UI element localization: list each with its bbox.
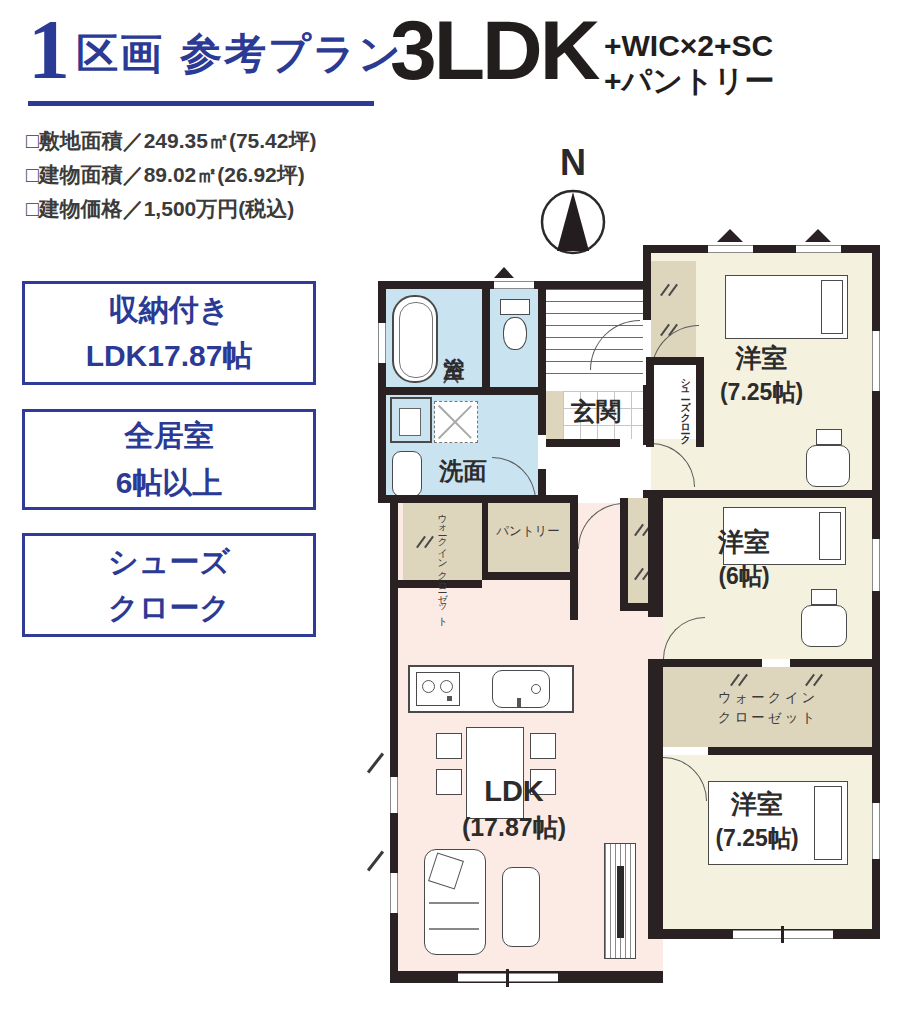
wall-segment	[648, 659, 663, 747]
window	[708, 245, 753, 253]
bathtub-icon	[392, 295, 438, 383]
sofa-icon	[424, 849, 486, 955]
layout-extras: +WIC×2+SC +パントリー	[604, 28, 774, 98]
wall-segment	[648, 498, 663, 617]
wall-segment	[620, 603, 662, 611]
plot-number: 1	[28, 10, 70, 90]
sofa-line	[429, 928, 479, 930]
window	[872, 539, 880, 591]
wall-segment	[538, 281, 546, 391]
window	[872, 803, 880, 859]
plot-unit-label: 区画	[70, 26, 164, 90]
walk-in-closet-east-floor	[663, 667, 872, 747]
bedroom-ne-size: (7.25帖)	[651, 377, 872, 408]
vanity-icon	[390, 397, 432, 443]
pillow	[821, 280, 843, 334]
wic-east-label-2: クローゼット	[678, 709, 858, 727]
wall-segment	[482, 572, 578, 580]
closet-hatch-icon	[660, 283, 682, 298]
wall-segment	[386, 495, 570, 503]
shutter-mark	[367, 851, 384, 872]
wall-segment	[643, 245, 880, 253]
layout-extra-1: +WIC×2+SC	[604, 28, 774, 63]
bedroom-e-label: 洋室	[663, 525, 825, 560]
feature-box-shoes: シューズ クローク	[22, 533, 316, 637]
closet-hatch-icon	[730, 673, 752, 688]
bedroom-ne-label: 洋室	[651, 341, 872, 376]
kitchen-sink-icon	[492, 670, 550, 708]
hatch-bar	[813, 674, 823, 687]
window	[494, 281, 534, 289]
wall-segment	[378, 387, 546, 395]
chair-icon	[801, 605, 847, 647]
burner-dot	[447, 696, 452, 701]
window-mullion	[506, 969, 509, 987]
entrance-label: 玄関	[546, 395, 646, 428]
layout-extra-2: +パントリー	[604, 63, 774, 98]
toilet-tank	[500, 299, 530, 315]
site-area: □敷地面積／249.35㎡(75.42坪)	[26, 124, 316, 158]
feature-box-ldk: 収納付き LDK17.87帖	[22, 281, 316, 385]
property-details: □敷地面積／249.35㎡(75.42坪) □建物面積／89.02㎡(26.92…	[26, 124, 316, 226]
chair-icon	[806, 445, 850, 487]
wall-segment	[663, 659, 762, 667]
building-area: □建物面積／89.02㎡(26.92坪)	[26, 158, 316, 192]
wall-segment	[643, 490, 880, 498]
sofa-line	[429, 902, 479, 904]
vent-triangle-icon	[494, 267, 514, 278]
bathtub-inner	[399, 302, 433, 378]
wall-segment	[643, 245, 651, 320]
window	[796, 245, 841, 253]
drain	[531, 684, 541, 694]
wall-segment	[482, 289, 490, 387]
closet-hatch-icon	[805, 673, 827, 688]
bedroom-e-size: (6帖)	[663, 561, 825, 592]
washing-machine-icon	[434, 401, 478, 443]
vent-triangle-icon	[805, 229, 831, 242]
compass-north-label: N	[538, 142, 608, 184]
faucet	[517, 698, 521, 707]
vanity-bowl	[399, 408, 421, 436]
dining-chair-icon	[530, 733, 556, 759]
window	[872, 331, 880, 391]
tv-board-icon	[604, 843, 636, 959]
vent-triangle-icon	[717, 229, 743, 242]
feature-2-line1: 全居室	[124, 413, 214, 460]
burner	[440, 680, 453, 693]
shutter-mark	[367, 753, 384, 774]
wall-segment	[790, 659, 880, 667]
chair-back	[816, 429, 842, 445]
kitchen-stove-icon	[416, 672, 460, 706]
window	[390, 777, 398, 813]
burner	[422, 680, 435, 693]
bedroom-se-size: (7.25帖)	[655, 823, 859, 854]
building-price: □建物価格／1,500万円(税込)	[26, 192, 316, 226]
window	[390, 873, 398, 913]
bed-icon	[725, 275, 848, 339]
feature-3-line1: シューズ	[108, 539, 230, 586]
ldk-size: (17.87帖)	[398, 811, 630, 844]
flyer-page: { "title": {"number": "1", "unit": "区画",…	[0, 0, 898, 1024]
layout-type: 3LDK	[390, 8, 597, 92]
wic-side-label: ウォークインクローゼット	[418, 507, 450, 577]
wall-segment	[708, 747, 880, 755]
wall-segment	[648, 747, 663, 755]
feature-1-line1: 収納付き	[109, 287, 230, 334]
hatch-bar	[668, 284, 678, 297]
window-mullion	[781, 926, 784, 943]
feature-1-line2: LDK17.87帖	[86, 333, 253, 380]
toilet-icon	[503, 317, 527, 350]
feature-2-line2: 6帖以上	[116, 460, 223, 507]
cushion	[428, 852, 464, 889]
dining-chair-icon	[436, 733, 462, 759]
floor-plan: 浴室 洗面 玄関 シューズクローク 洋室 (7.25帖) 洋室 (6帖) 洋室 …	[378, 245, 890, 993]
wall-segment	[538, 391, 546, 435]
tv-screen	[617, 866, 624, 938]
reference-plan-label: 参考プラン	[164, 26, 403, 90]
wall-segment	[570, 495, 578, 620]
feature-box-rooms: 全居室 6帖以上	[22, 409, 316, 510]
bedroom-se-label: 洋室	[655, 787, 859, 822]
bathroom-label: 浴室	[440, 303, 468, 379]
plan-title: 1 区画 参考プラン	[28, 10, 403, 90]
ldk-label: LDK	[398, 775, 630, 808]
title-underline	[28, 101, 374, 106]
coffee-table-icon	[502, 867, 540, 947]
wall-segment	[620, 498, 628, 611]
pantry-label: パントリー	[482, 523, 574, 540]
window	[378, 323, 386, 363]
hatch-bar	[738, 674, 748, 687]
washroom-label: 洗面	[408, 455, 518, 487]
wall-segment	[546, 439, 620, 447]
feature-3-line2: クローク	[108, 585, 230, 632]
wic-east-label-1: ウォークイン	[678, 689, 858, 707]
